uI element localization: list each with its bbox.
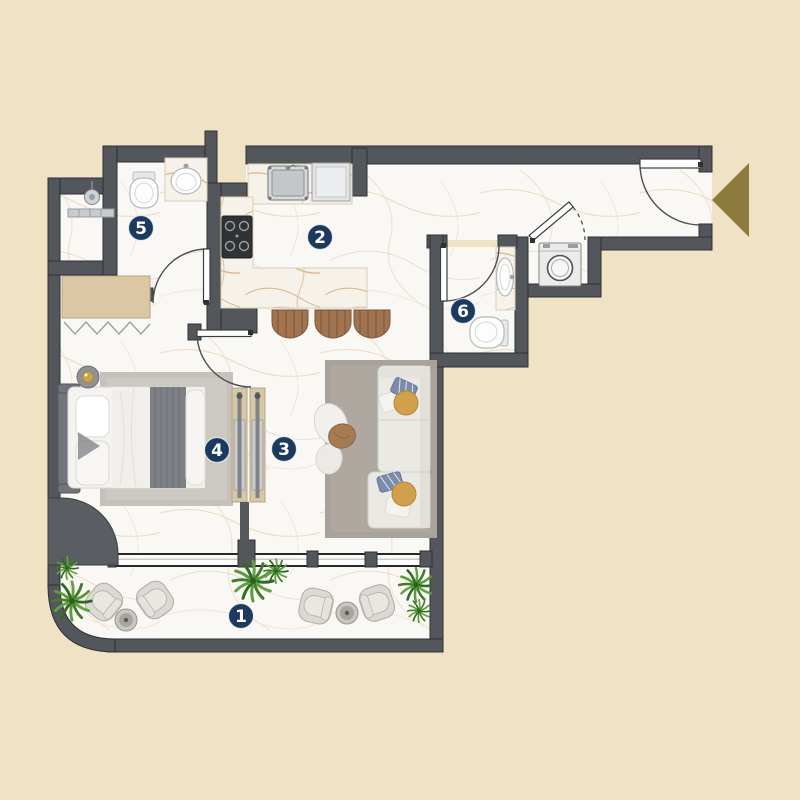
bed — [58, 384, 205, 493]
washing-machine-icon — [539, 243, 581, 286]
room-marker-3: 3 — [272, 437, 297, 462]
kitchen-sink-icon — [268, 165, 308, 200]
room-marker-2: 2 — [308, 225, 333, 250]
svg-text:6: 6 — [457, 302, 469, 322]
svg-text:2: 2 — [314, 228, 326, 248]
svg-text:1: 1 — [235, 607, 247, 627]
room-marker-5: 5 — [129, 216, 154, 241]
bathroom6-sink-counter — [496, 247, 515, 310]
window-band — [112, 553, 432, 567]
room-marker-6: 6 — [451, 299, 476, 324]
svg-text:4: 4 — [211, 441, 223, 461]
bathroom5-sink-counter — [165, 158, 207, 201]
svg-text:3: 3 — [278, 440, 290, 460]
bar-stools — [272, 310, 390, 338]
room-marker-4: 4 — [205, 438, 230, 463]
nightstand-lamp-icon — [77, 366, 99, 388]
room-marker-1: 1 — [229, 604, 254, 629]
stove-icon — [222, 216, 252, 258]
toilet-icon — [130, 172, 158, 208]
toilet-icon-2 — [470, 317, 508, 348]
floor-plan: 1 2 3 4 5 6 — [0, 0, 800, 800]
svg-text:5: 5 — [135, 219, 147, 239]
oven-icon — [312, 163, 350, 201]
